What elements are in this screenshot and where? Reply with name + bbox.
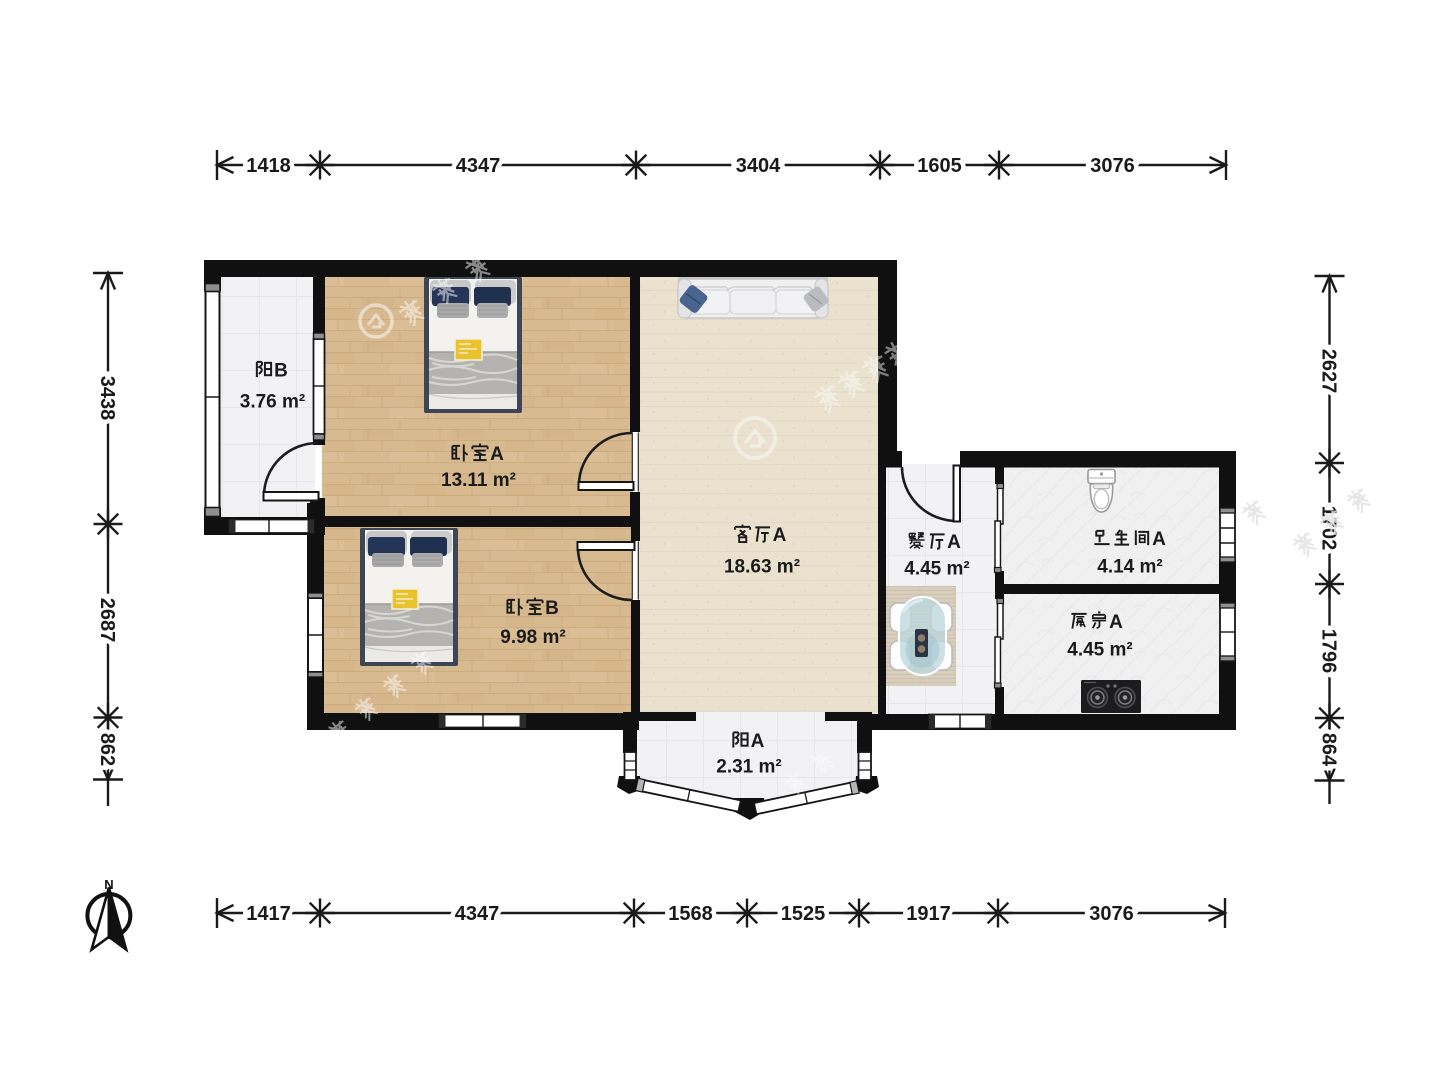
svg-text:3.76 m²: 3.76 m² <box>240 392 305 413</box>
svg-text:A: A <box>751 731 765 752</box>
svg-text:1917: 1917 <box>906 903 951 925</box>
svg-text:4347: 4347 <box>456 155 501 177</box>
svg-text:2.31 m²: 2.31 m² <box>716 757 781 778</box>
svg-text:4.45 m²: 4.45 m² <box>1067 640 1132 661</box>
svg-text:A: A <box>773 525 787 546</box>
svg-text:3404: 3404 <box>736 155 781 177</box>
svg-text:13.11 m²: 13.11 m² <box>441 470 516 491</box>
svg-text:1525: 1525 <box>781 903 826 925</box>
svg-text:A: A <box>1152 529 1166 550</box>
svg-text:B: B <box>545 598 559 619</box>
svg-text:1417: 1417 <box>246 903 291 925</box>
svg-text:1568: 1568 <box>668 903 713 925</box>
svg-text:4347: 4347 <box>455 903 500 925</box>
svg-text:3438: 3438 <box>96 376 118 421</box>
svg-text:B: B <box>274 361 288 382</box>
svg-text:A: A <box>947 532 961 553</box>
svg-text:1418: 1418 <box>246 155 291 177</box>
svg-text:1796: 1796 <box>1318 629 1340 674</box>
svg-text:A: A <box>1109 612 1123 633</box>
svg-text:1605: 1605 <box>917 155 962 177</box>
svg-text:2627: 2627 <box>1318 349 1340 394</box>
svg-text:3076: 3076 <box>1089 903 1134 925</box>
svg-text:A: A <box>490 444 504 465</box>
svg-text:864: 864 <box>1318 733 1340 767</box>
svg-text:18.63 m²: 18.63 m² <box>724 557 800 578</box>
svg-text:2687: 2687 <box>96 598 118 643</box>
svg-text:4.14 m²: 4.14 m² <box>1097 557 1162 578</box>
svg-text:862: 862 <box>96 733 118 766</box>
svg-text:9.98 m²: 9.98 m² <box>500 627 565 648</box>
svg-text:4.45 m²: 4.45 m² <box>904 559 969 580</box>
svg-text:3076: 3076 <box>1090 155 1135 177</box>
svg-text:1702: 1702 <box>1318 506 1340 551</box>
